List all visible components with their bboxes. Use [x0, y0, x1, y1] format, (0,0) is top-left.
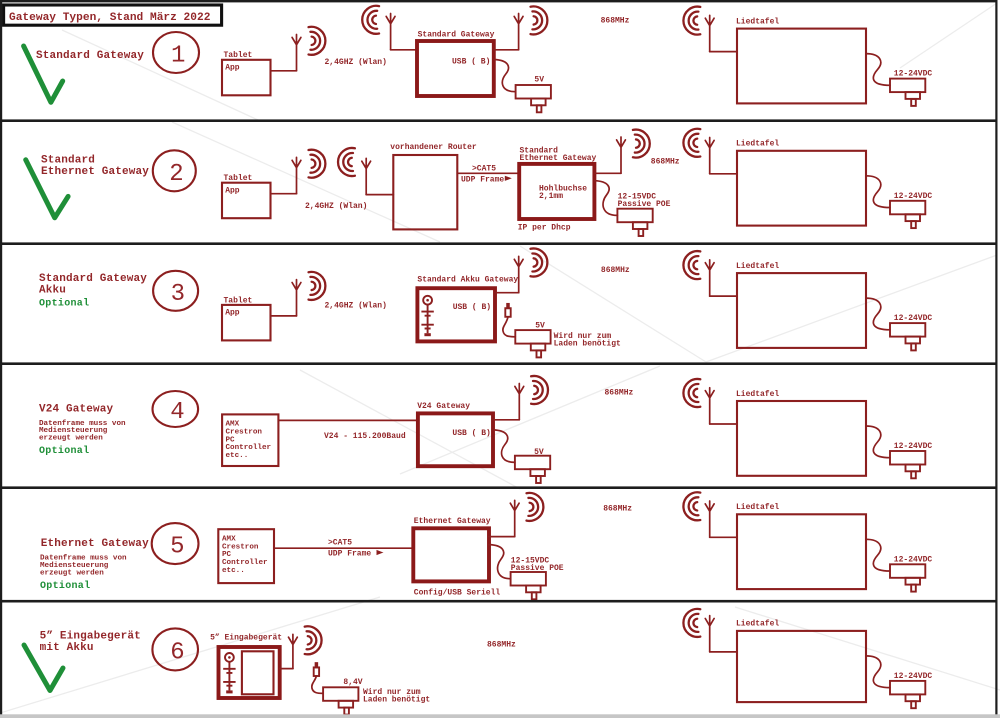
svg-text:5: 5 — [170, 534, 184, 561]
svg-text:5” Eingabegerät: 5” Eingabegerät — [40, 631, 141, 643]
svg-text:Crestron: Crestron — [226, 429, 263, 437]
svg-text:868MHz: 868MHz — [603, 504, 632, 513]
svg-text:>CAT5: >CAT5 — [472, 165, 496, 174]
svg-text:4: 4 — [170, 399, 184, 426]
svg-text:V24 - 115.200Baud: V24 - 115.200Baud — [324, 432, 406, 441]
svg-text:>CAT5: >CAT5 — [328, 539, 352, 548]
svg-text:App: App — [225, 186, 240, 195]
svg-text:Ethernet Gateway: Ethernet Gateway — [41, 166, 149, 178]
svg-text:Liedtafel: Liedtafel — [736, 503, 779, 512]
svg-text:IP per Dhcp: IP per Dhcp — [518, 224, 571, 233]
svg-text:Optional: Optional — [40, 580, 90, 592]
svg-text:3: 3 — [171, 281, 185, 308]
svg-text:Passive POE: Passive POE — [618, 200, 671, 209]
svg-text:Optional: Optional — [39, 298, 89, 310]
svg-text:868MHz: 868MHz — [651, 157, 680, 166]
svg-text:1: 1 — [171, 43, 185, 70]
svg-text:Controller: Controller — [226, 444, 272, 452]
svg-text:2,4GHZ (Wlan): 2,4GHZ (Wlan) — [325, 301, 387, 310]
svg-text:Akku: Akku — [39, 284, 66, 296]
svg-text:Standard Akku Gateway: Standard Akku Gateway — [417, 275, 518, 284]
svg-text:Ethernet Gateway: Ethernet Gateway — [520, 154, 597, 163]
svg-text:V24 Gateway: V24 Gateway — [417, 402, 470, 411]
svg-text:etc..: etc.. — [226, 452, 249, 460]
svg-text:Liedtafel: Liedtafel — [736, 620, 779, 629]
svg-text:vorhandener Router: vorhandener Router — [390, 143, 477, 152]
svg-text:App: App — [225, 309, 240, 318]
svg-text:V24 Gateway: V24 Gateway — [39, 403, 114, 415]
svg-text:2: 2 — [169, 161, 183, 188]
svg-text:12-24VDC: 12-24VDC — [894, 442, 933, 451]
svg-text:USB ( B): USB ( B) — [452, 58, 490, 67]
svg-text:12-24VDC: 12-24VDC — [894, 70, 933, 79]
svg-text:2,4GHZ (Wlan): 2,4GHZ (Wlan) — [305, 202, 367, 211]
svg-text:Optional: Optional — [39, 445, 89, 457]
svg-text:12-24VDC: 12-24VDC — [894, 192, 933, 201]
svg-text:Standard: Standard — [41, 154, 95, 166]
svg-text:Controller: Controller — [222, 559, 268, 567]
svg-text:6: 6 — [170, 639, 184, 666]
svg-text:Standard Gateway: Standard Gateway — [418, 31, 495, 40]
svg-text:Liedtafel: Liedtafel — [736, 140, 779, 149]
svg-text:5V: 5V — [534, 76, 544, 85]
svg-text:USB ( B): USB ( B) — [453, 303, 491, 312]
svg-text:UDP Frame: UDP Frame — [328, 550, 371, 559]
svg-text:12-24VDC: 12-24VDC — [894, 672, 933, 681]
svg-text:AMX: AMX — [222, 536, 236, 544]
svg-text:mit Akku: mit Akku — [40, 642, 94, 654]
svg-text:Laden benötigt: Laden benötigt — [363, 695, 430, 704]
svg-text:868MHz: 868MHz — [605, 388, 634, 397]
svg-text:UDP Frame: UDP Frame — [461, 175, 504, 184]
svg-text:AMX: AMX — [226, 421, 240, 429]
svg-text:Ethernet Gateway: Ethernet Gateway — [41, 538, 149, 550]
svg-text:2,4GHZ (Wlan): 2,4GHZ (Wlan) — [325, 58, 387, 67]
svg-text:etc..: etc.. — [222, 567, 245, 575]
svg-text:868MHz: 868MHz — [601, 17, 630, 26]
svg-text:5” Eingabegerät: 5” Eingabegerät — [210, 634, 282, 643]
svg-text:12-24VDC: 12-24VDC — [894, 314, 933, 323]
svg-text:USB ( B): USB ( B) — [452, 429, 490, 438]
svg-text:Liedtafel: Liedtafel — [736, 262, 779, 271]
svg-text:Gateway Typen, Stand März 2022: Gateway Typen, Stand März 2022 — [9, 12, 211, 24]
svg-text:erzeugt werden: erzeugt werden — [39, 435, 103, 443]
svg-text:App: App — [225, 64, 240, 73]
svg-text:868MHz: 868MHz — [601, 266, 630, 275]
svg-text:Liedtafel: Liedtafel — [736, 390, 779, 399]
svg-text:PC: PC — [222, 551, 232, 559]
svg-text:Standard Gateway: Standard Gateway — [36, 50, 144, 62]
svg-text:12-24VDC: 12-24VDC — [894, 555, 933, 564]
svg-text:Ethernet Gateway: Ethernet Gateway — [414, 517, 491, 526]
svg-text:Config/USB Seriell: Config/USB Seriell — [414, 588, 501, 597]
svg-text:Crestron: Crestron — [222, 543, 259, 551]
svg-text:868MHz: 868MHz — [487, 641, 516, 650]
svg-text:erzeugt werden: erzeugt werden — [40, 569, 104, 577]
svg-text:2,1mm: 2,1mm — [539, 192, 563, 201]
svg-text:Standard Gateway: Standard Gateway — [39, 273, 147, 285]
svg-text:8,4V: 8,4V — [343, 678, 362, 687]
svg-text:Laden benötigt: Laden benötigt — [554, 339, 621, 348]
svg-text:PC: PC — [226, 436, 236, 444]
svg-text:Liedtafel: Liedtafel — [736, 17, 779, 26]
